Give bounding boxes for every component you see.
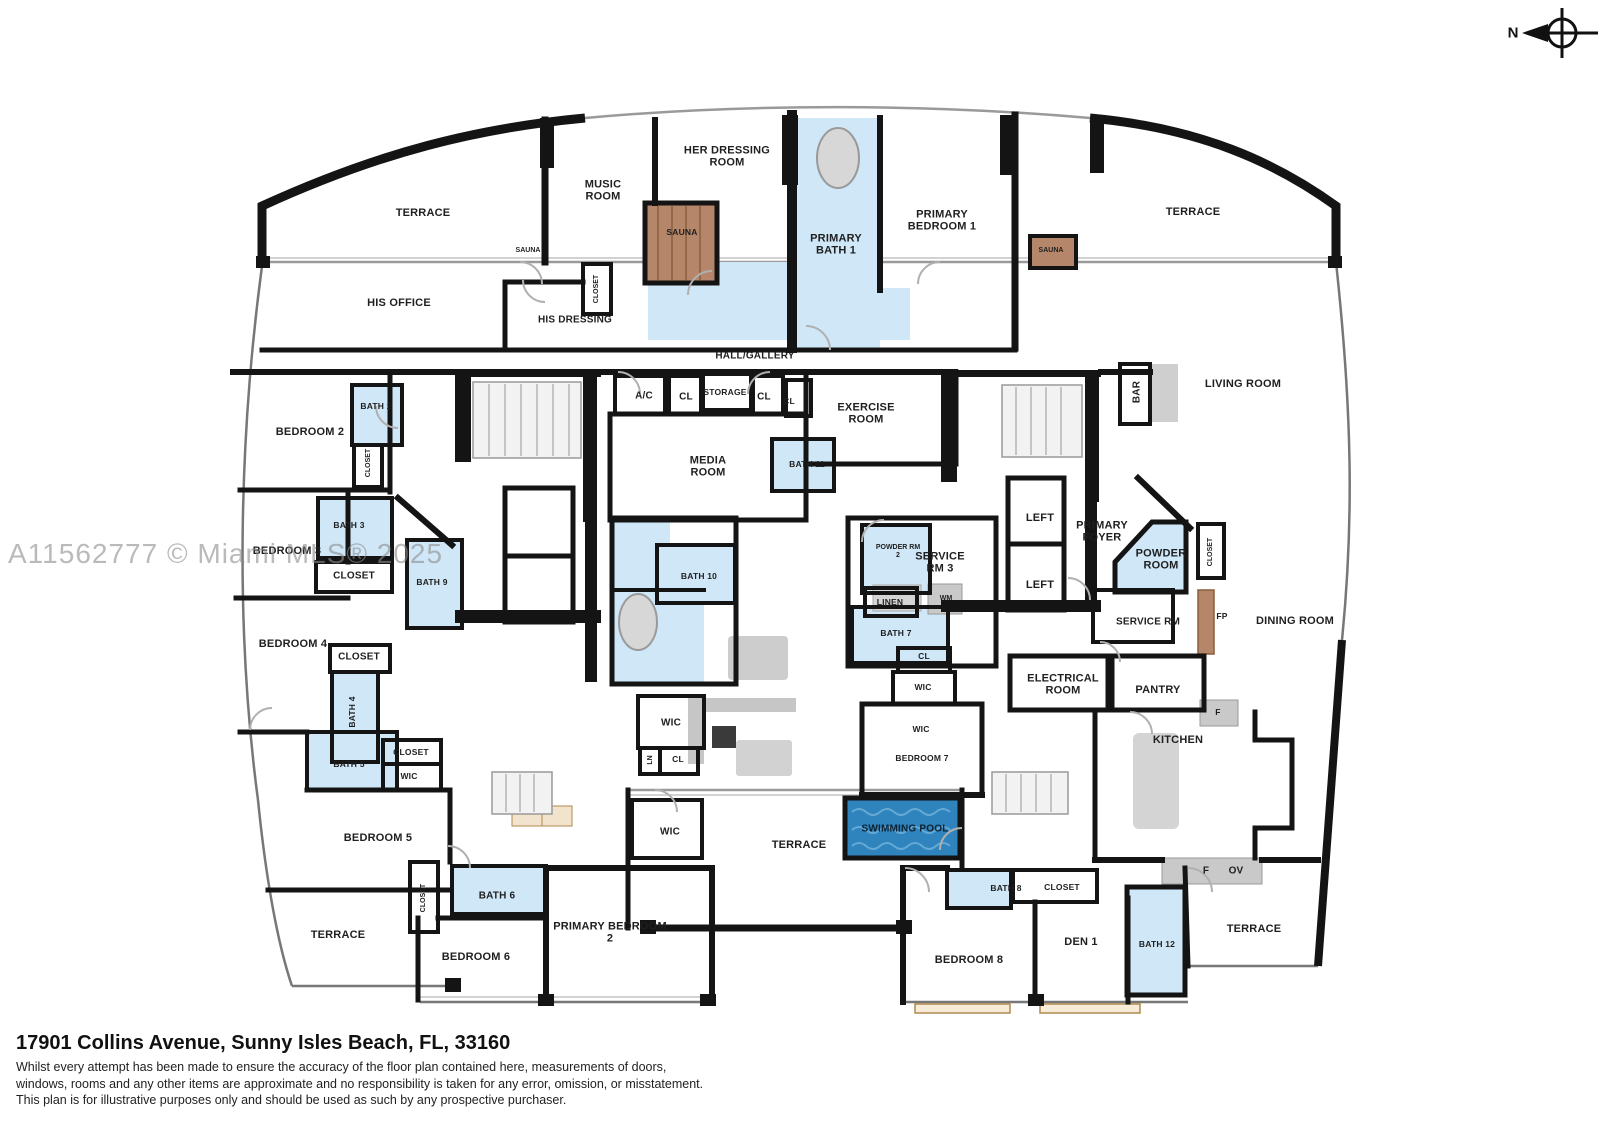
room-label-terrace-top-right: TERRACE [1166, 206, 1221, 218]
room-label-sauna-center: SAUNA [666, 228, 697, 238]
room-label-her-dressing-room: HER DRESSING ROOM [672, 145, 782, 170]
room-label-ac: A/C [635, 390, 653, 401]
room-label-bath-6: BATH 6 [479, 890, 516, 901]
room-label-cl-bath-7: CL [918, 652, 930, 662]
room-label-wic-service: WIC [914, 683, 931, 693]
room-label-service-rm: SERVICE RM [1116, 616, 1180, 627]
room-label-f-pantry: F [1215, 708, 1220, 718]
room-label-bath-2-small: BATH 2 [360, 402, 391, 412]
room-label-bath-7: BATH 7 [880, 629, 911, 639]
room-label-bath-11: BATH 11 [789, 460, 825, 470]
room-label-bath-3: BATH 3 [333, 521, 364, 531]
disclaimer-line-2: windows, rooms and any other items are a… [16, 1076, 1116, 1093]
room-label-cl-3: CL [783, 397, 795, 407]
room-label-his-dressing: HIS DRESSING [538, 314, 612, 325]
room-label-bath-4: BATH 4 [348, 696, 358, 727]
room-label-closet-his-dressing: CLOSET [593, 275, 601, 303]
property-address: 17901 Collins Avenue, Sunny Isles Beach,… [16, 1032, 1116, 1055]
room-label-lift-upper: LEFT [1026, 512, 1054, 524]
room-label-bath-5: BATH 5 [333, 760, 364, 770]
room-label-closet-bedroom-3: CLOSET [333, 570, 375, 581]
room-label-dining-room: DINING ROOM [1256, 615, 1334, 627]
room-label-primary-bedroom-2: PRIMARY BEDROOM 2 [550, 921, 670, 946]
room-label-pantry: PANTRY [1135, 684, 1180, 696]
compass-icon [1522, 8, 1598, 58]
room-label-bedroom-5: BEDROOM 5 [344, 832, 412, 844]
floorplan-page: TERRACE MUSIC ROOM HER DRESSING ROOM SAU… [0, 0, 1600, 1130]
room-label-closet-bedroom-5: CLOSET [393, 748, 429, 758]
room-label-primary-bedroom-1: PRIMARY BEDROOM 1 [887, 209, 997, 234]
room-label-terrace-top-left: TERRACE [396, 207, 451, 219]
room-label-bath-12: BATH 12 [1139, 940, 1175, 950]
room-label-wm: WM [940, 595, 952, 603]
room-label-service-rm-3: SERVICE RM 3 [908, 551, 972, 576]
room-label-bath-9: BATH 9 [416, 578, 447, 588]
disclaimer-line-3: This plan is for illustrative purposes o… [16, 1092, 1116, 1109]
room-label-wic-bedroom-7: WIC [912, 725, 929, 735]
room-label-kitchen: KITCHEN [1153, 734, 1203, 746]
room-label-living-room: LIVING ROOM [1205, 378, 1281, 390]
room-label-storage: STORAGE [703, 388, 746, 398]
room-label-fp: FP [1216, 612, 1227, 622]
room-label-exercise-room: EXERCISE ROOM [831, 402, 901, 427]
room-label-closet-bedroom-8: CLOSET [1044, 883, 1080, 893]
room-label-bedroom-7: BEDROOM 7 [895, 754, 948, 764]
room-label-terrace-center: TERRACE [772, 839, 827, 851]
room-label-hall-gallery: HALL/GALLERY [715, 350, 794, 361]
room-label-cl-2: CL [757, 391, 771, 402]
compass-north-label: N [1508, 25, 1519, 42]
room-label-swimming-pool: SWIMMING POOL [861, 823, 948, 834]
room-label-f-kitchen: F [1203, 865, 1209, 876]
room-label-bath-10: BATH 10 [681, 572, 717, 582]
room-label-bedroom-4: BEDROOM 4 [259, 638, 327, 650]
room-label-wic-center-lower: WIC [660, 826, 680, 837]
room-label-powder-room: POWDER ROOM [1131, 548, 1191, 573]
room-label-lift-lower: LEFT [1026, 579, 1054, 591]
room-label-wic-center-upper: WIC [661, 717, 681, 728]
room-label-sauna-right: SAUNA [1039, 247, 1064, 255]
room-label-ln-center: LN [647, 755, 655, 764]
room-label-closet-bedroom-6: CLOSET [420, 884, 428, 912]
room-label-sauna-left: SAUNA [516, 247, 541, 255]
room-label-ov-kitchen: OV [1229, 865, 1244, 876]
room-label-bar: BAR [1131, 381, 1142, 403]
room-label-den-1: DEN 1 [1064, 936, 1097, 948]
room-label-bath-8: BATH 8 [990, 884, 1021, 894]
room-label-bedroom-6: BEDROOM 6 [442, 951, 510, 963]
room-label-electrical-room: ELECTRICAL ROOM [1017, 673, 1109, 698]
room-label-linen: LINEN [877, 598, 904, 608]
disclaimer-line-1: Whilst every attempt has been made to en… [16, 1059, 1116, 1076]
room-label-terrace-bottom-left: TERRACE [311, 929, 366, 941]
room-label-wic-bedroom-5: WIC [400, 772, 417, 782]
room-label-closet-bedroom-4: CLOSET [338, 651, 380, 662]
room-label-music-room: MUSIC ROOM [573, 179, 633, 204]
room-label-terrace-bottom-right: TERRACE [1227, 923, 1282, 935]
room-label-closet-bedroom-2: CLOSET [365, 449, 373, 477]
mls-watermark: A11562777 © Miami MLS® 2025 [8, 538, 443, 570]
room-label-bedroom-2: BEDROOM 2 [276, 426, 344, 438]
room-label-cl-1: CL [679, 391, 693, 402]
room-label-his-office: HIS OFFICE [367, 297, 431, 309]
footer: 17901 Collins Avenue, Sunny Isles Beach,… [16, 1032, 1116, 1109]
room-label-primary-bath-1: PRIMARY BATH 1 [804, 233, 868, 258]
room-label-closet-powder: CLOSET [1207, 538, 1215, 566]
room-label-bedroom-8: BEDROOM 8 [935, 954, 1003, 966]
room-label-cl-center: CL [672, 755, 684, 765]
room-label-media-room: MEDIA ROOM [678, 455, 738, 480]
room-label-primary-foyer: PRIMARY FOYER [1069, 520, 1135, 545]
